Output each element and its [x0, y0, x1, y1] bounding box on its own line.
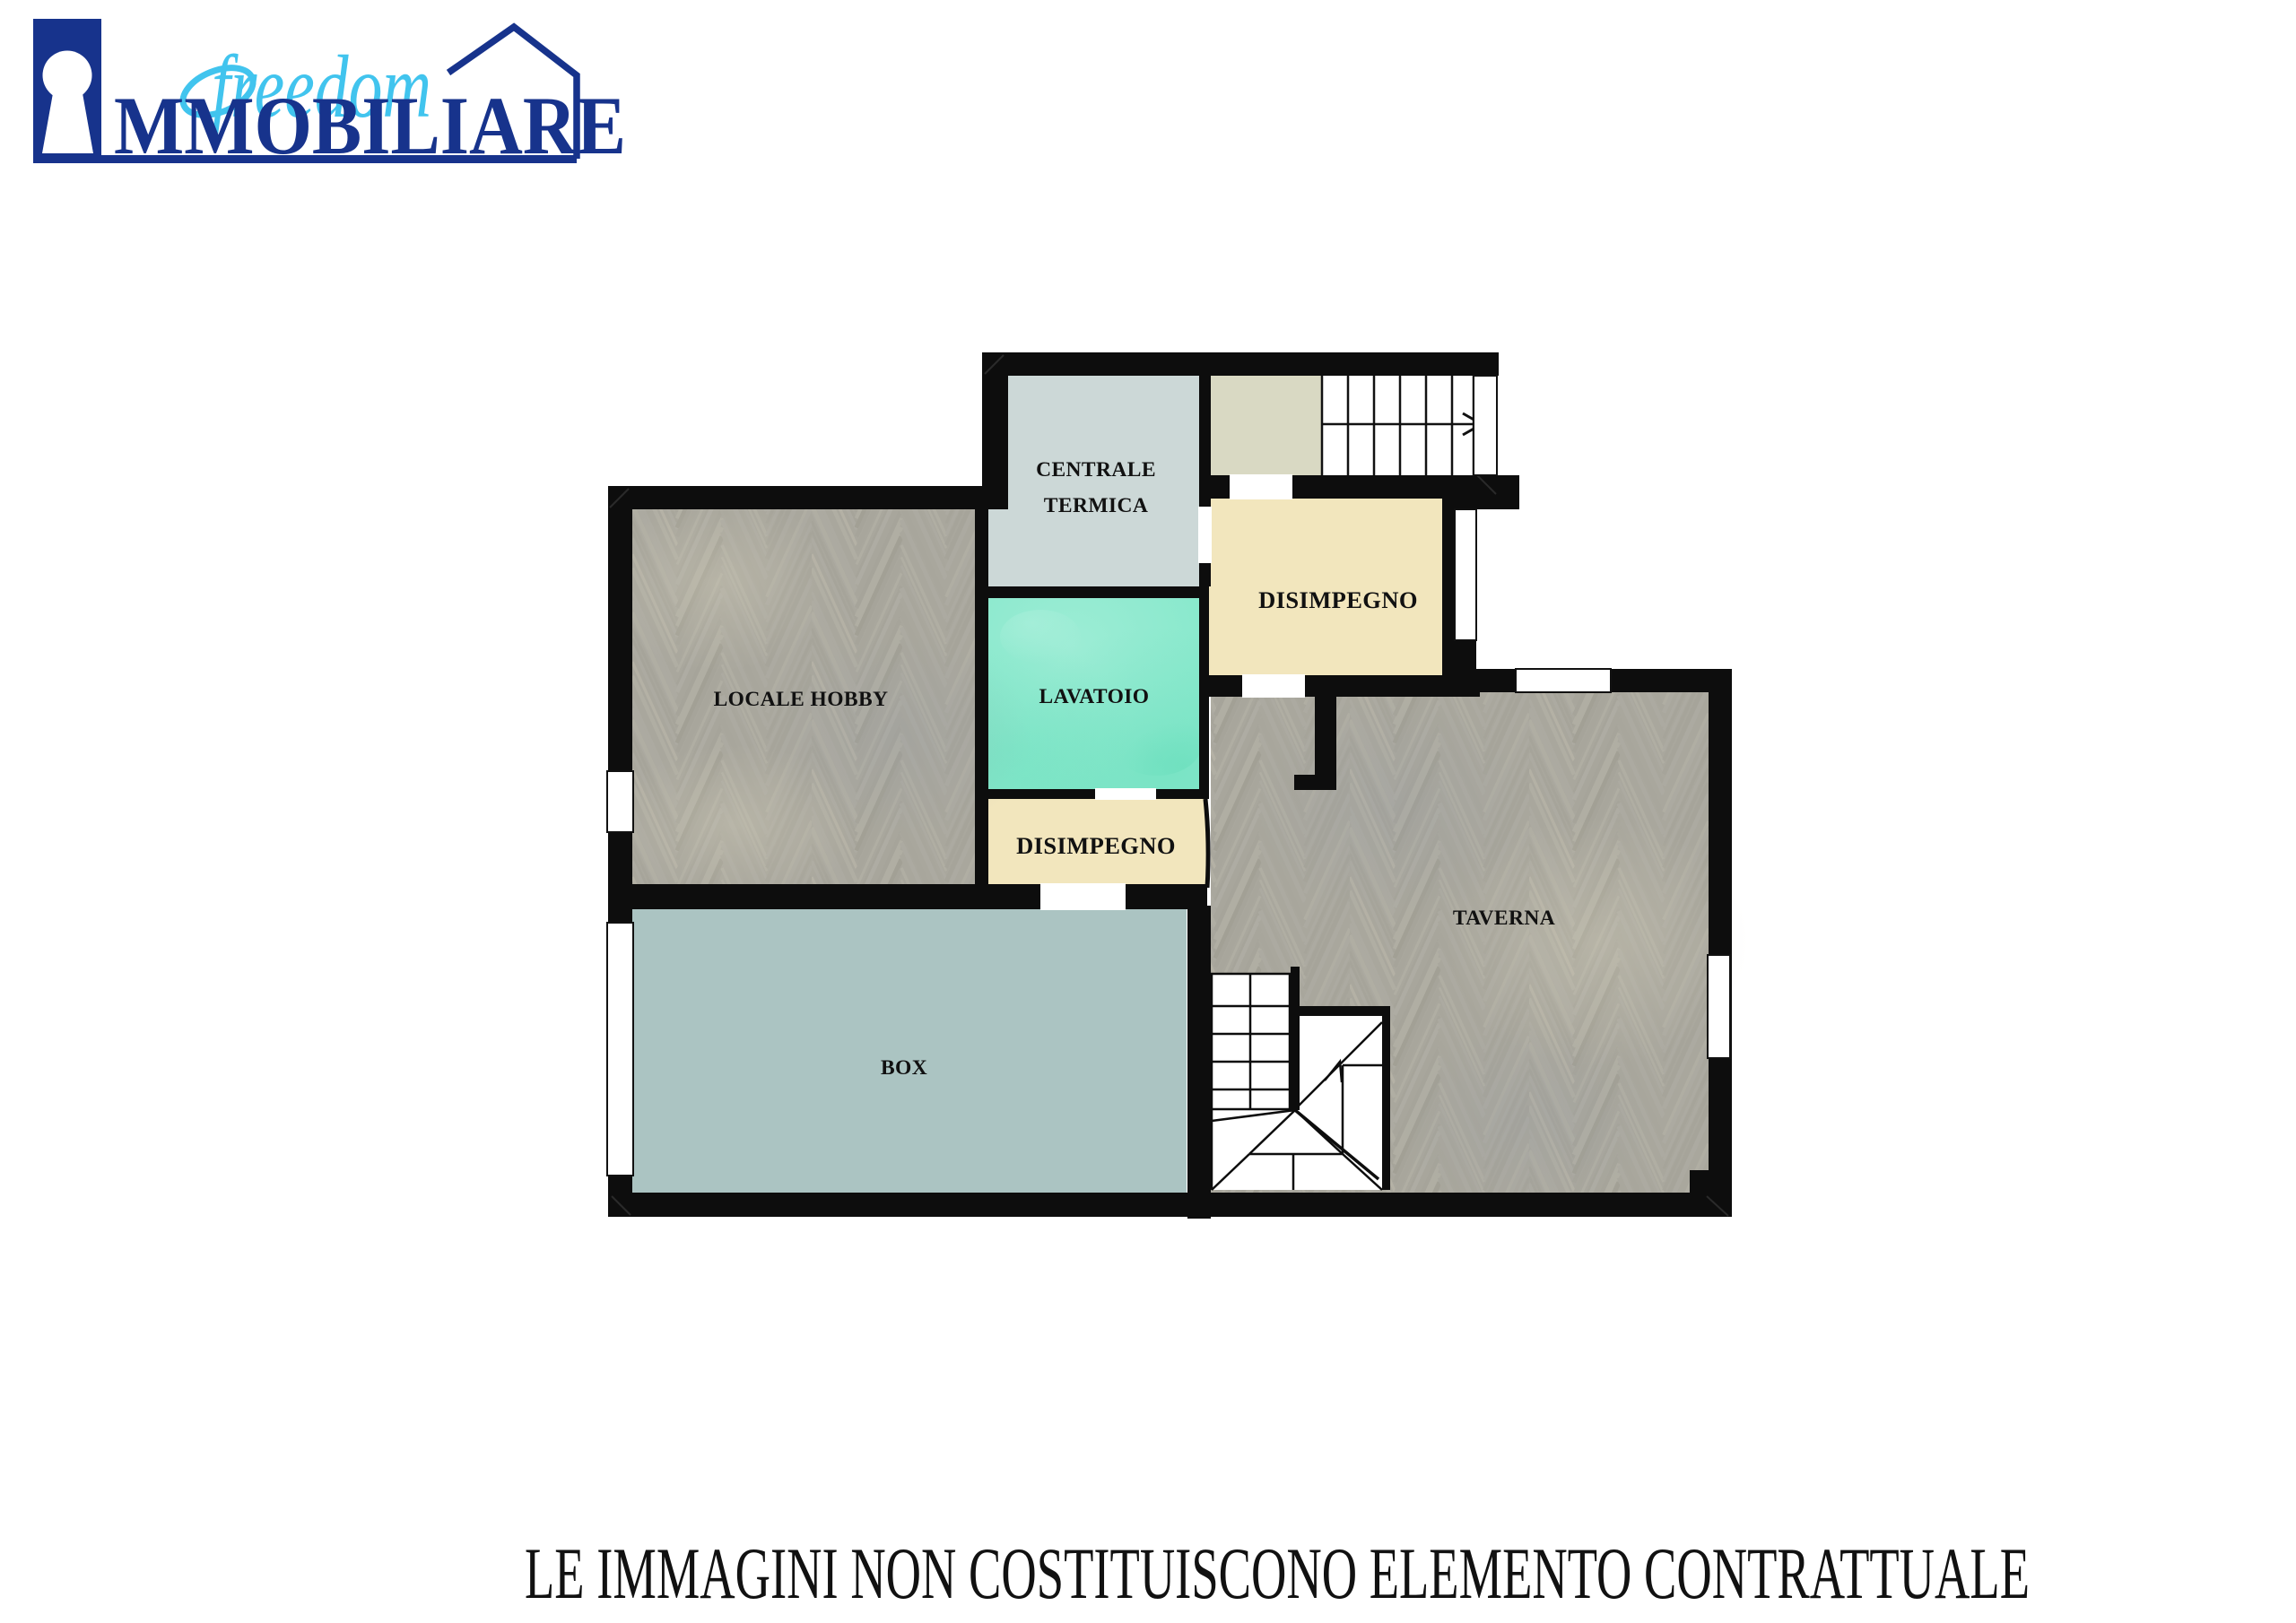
svg-text:DISIMPEGNO: DISIMPEGNO [1016, 832, 1176, 859]
svg-text:CENTRALE: CENTRALE [1036, 458, 1156, 482]
svg-text:LOCALE HOBBY: LOCALE HOBBY [714, 688, 889, 711]
svg-text:TERMICA: TERMICA [1044, 494, 1148, 517]
svg-text:BOX: BOX [881, 1056, 927, 1080]
svg-text:LAVATOIO: LAVATOIO [1039, 685, 1150, 708]
svg-text:TAVERNA: TAVERNA [1453, 907, 1555, 930]
svg-text:MMOBILIARE: MMOBILIARE [114, 80, 626, 171]
svg-text:LE IMMAGINI NON COSTITUISCONO: LE IMMAGINI NON COSTITUISCONO ELEMENTO C… [525, 1532, 2030, 1614]
svg-text:DISIMPEGNO: DISIMPEGNO [1258, 586, 1418, 613]
